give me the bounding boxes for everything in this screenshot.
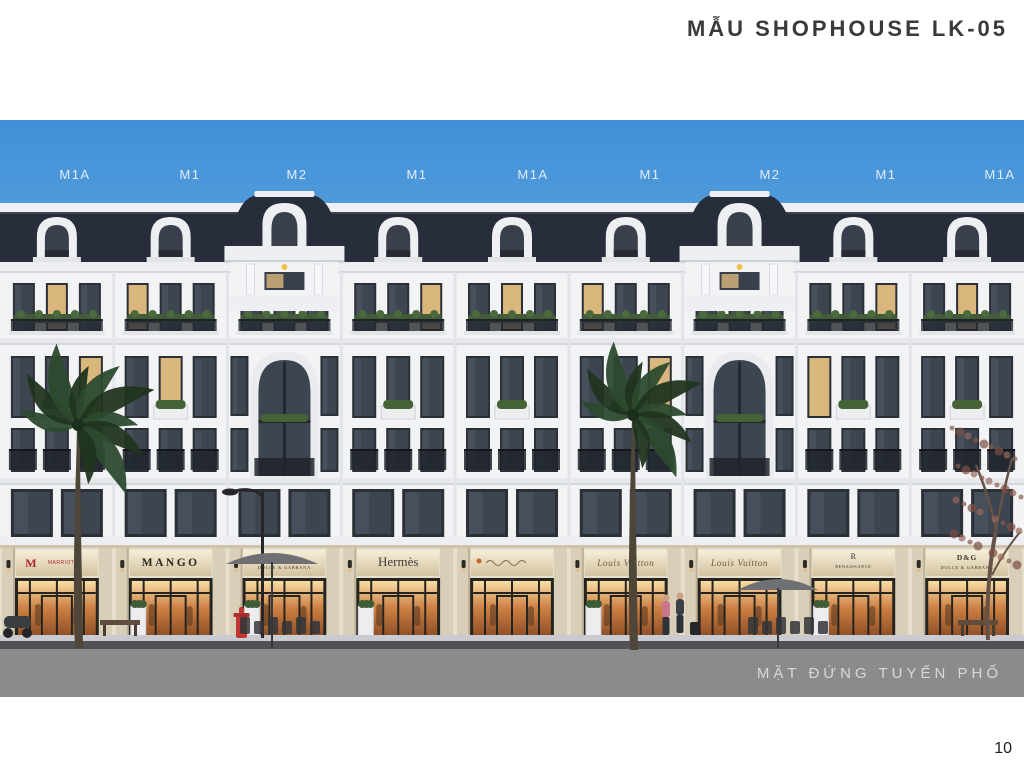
- unit-label-2: M1: [179, 167, 200, 182]
- svg-text:Louis Vuitton: Louis Vuitton: [710, 559, 768, 569]
- svg-text:DOLCE & GABBANA: DOLCE & GABBANA: [258, 565, 311, 570]
- unit-label-9: M1A: [984, 167, 1015, 182]
- svg-text:MARRIOTT: MARRIOTT: [48, 560, 78, 566]
- unit-label-1: M1A: [59, 167, 90, 182]
- unit-label-5: M1A: [517, 167, 548, 182]
- svg-text:Louis Vuitton: Louis Vuitton: [596, 559, 654, 569]
- shop-sign-4: Hermès: [378, 554, 418, 569]
- shop-sign-7: Louis Vuitton: [710, 559, 768, 569]
- svg-text:MANGO: MANGO: [142, 557, 200, 569]
- unit-label-8: M1: [875, 167, 896, 182]
- facade-rendering: MMARRIOTTMANGOD&GDOLCE & GABBANAHermèsLo…: [0, 120, 1024, 697]
- svg-text:DOLCE & GABBANA: DOLCE & GABBANA: [941, 565, 994, 570]
- svg-text:RENAISSANCE: RENAISSANCE: [835, 564, 871, 569]
- shop-sign-6: Louis Vuitton: [596, 559, 654, 569]
- unit-label-7: M2: [759, 167, 780, 182]
- shop-sign-2: MANGO: [142, 557, 200, 569]
- unit-label-4: M1: [406, 167, 427, 182]
- unit-label-3: M2: [286, 167, 307, 182]
- unit-label-6: M1: [639, 167, 660, 182]
- page-number: 10: [994, 740, 1012, 758]
- svg-text:Hermès: Hermès: [378, 554, 418, 569]
- slide-title: MẪU SHOPHOUSE LK-05: [687, 16, 1008, 42]
- rendering-caption: MẶT ĐỨNG TUYẾN PHỐ: [757, 665, 1002, 682]
- building-unit-7: [680, 191, 800, 636]
- facade-rendering-image: MMARRIOTTMANGOD&GDOLCE & GABBANAHermèsLo…: [0, 120, 1024, 697]
- slide: MẪU SHOPHOUSE LK-05 MMARRIOTTMANGOD&GDOL…: [0, 0, 1024, 768]
- svg-text:M: M: [25, 556, 36, 570]
- svg-text:D&G: D&G: [957, 553, 978, 562]
- svg-text:R: R: [851, 552, 857, 561]
